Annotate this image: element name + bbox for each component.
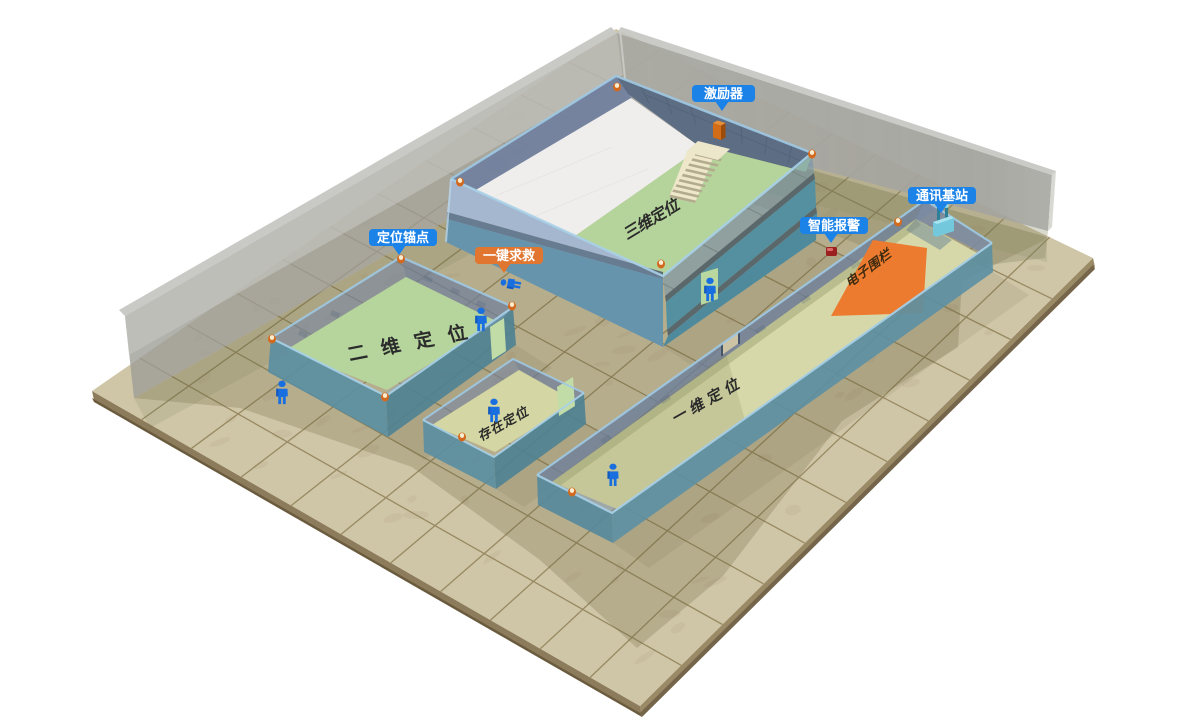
svg-text:激励器: 激励器 (704, 86, 744, 101)
svg-text:定位锚点: 定位锚点 (376, 230, 429, 245)
svg-text:一键求救: 一键求救 (483, 248, 535, 263)
svg-text:通讯基站: 通讯基站 (916, 188, 968, 203)
svg-text:智能报警: 智能报警 (808, 218, 860, 233)
